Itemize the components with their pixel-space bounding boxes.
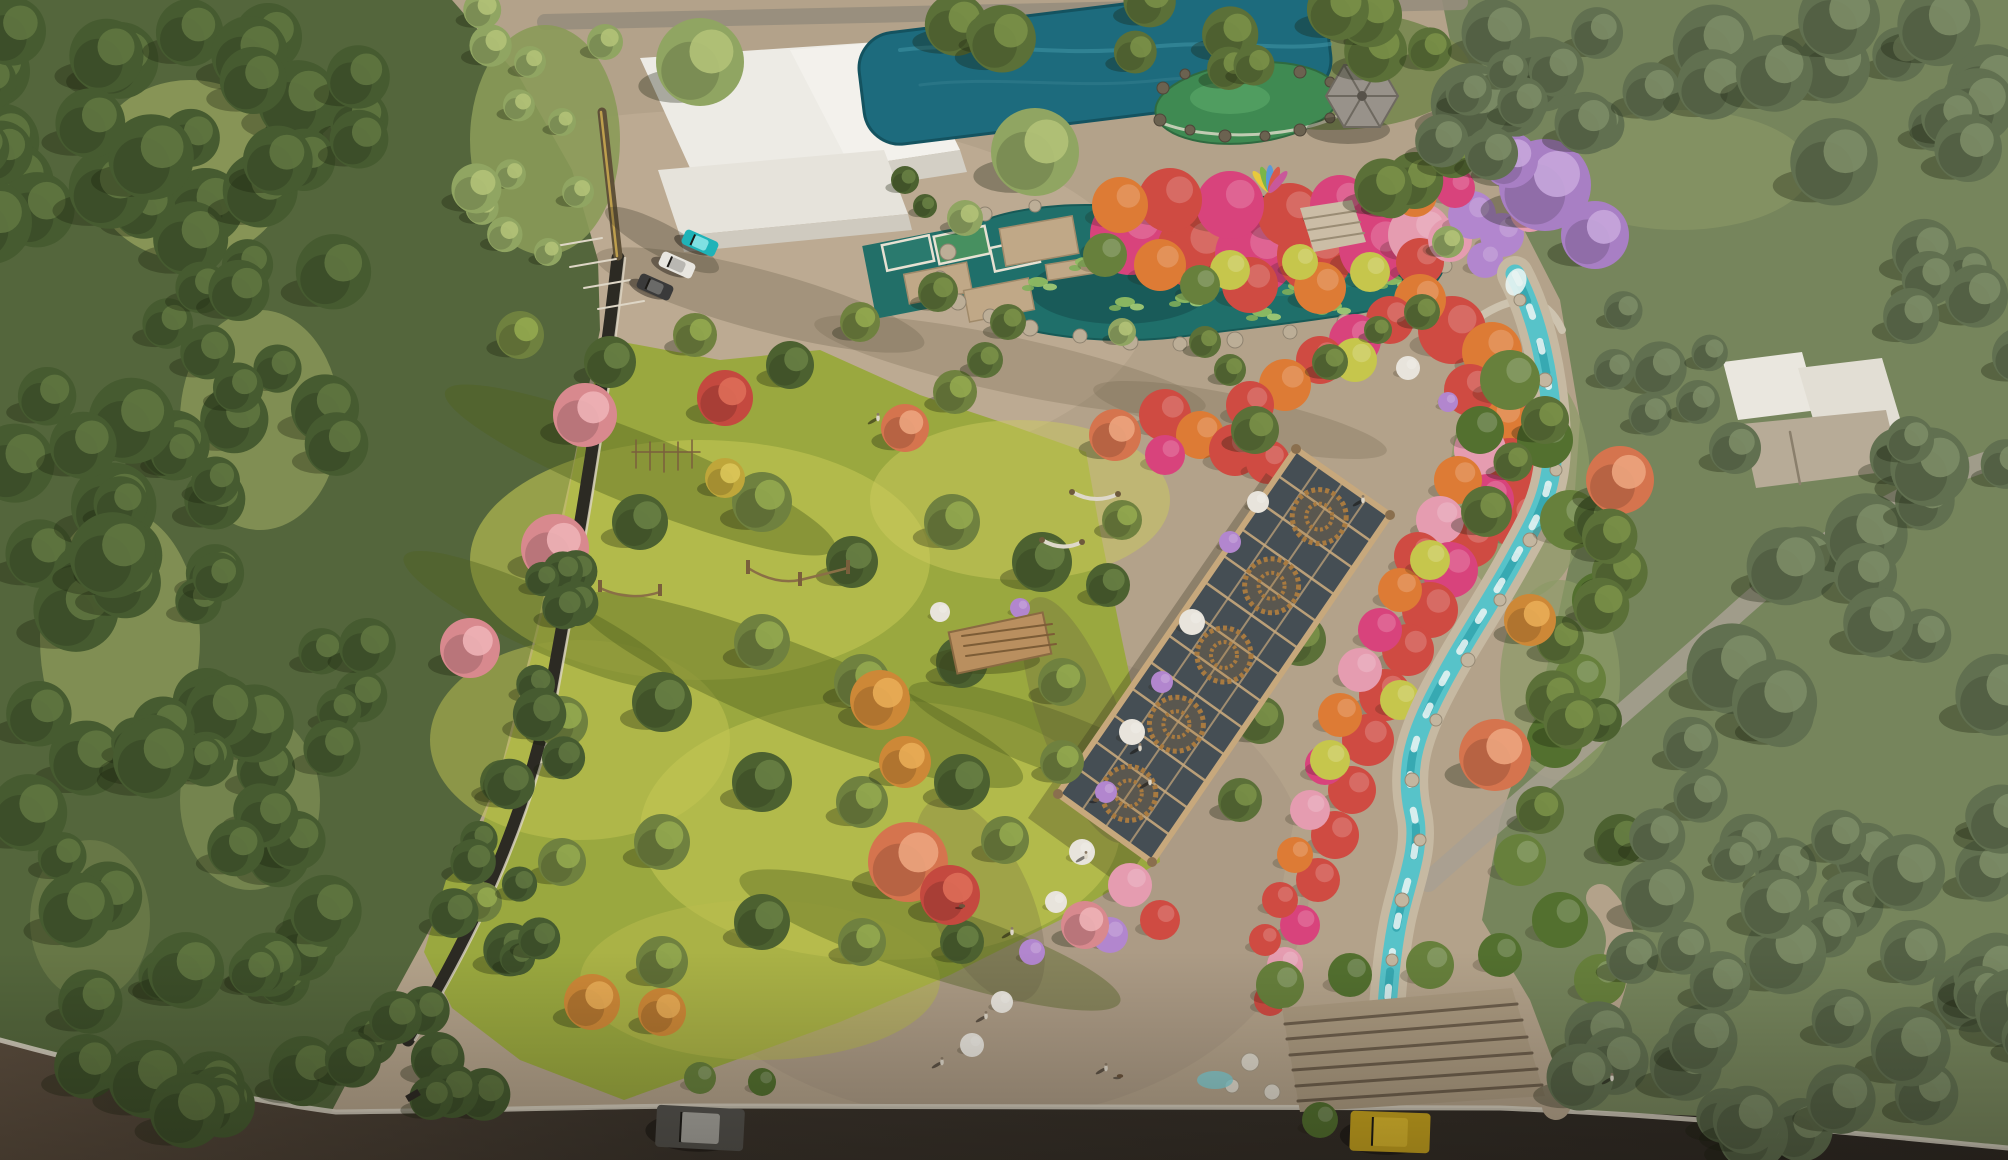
scene-layers — [0, 0, 2008, 1160]
bottom-shade-overlay — [0, 0, 2008, 1160]
scene-svg — [0, 0, 2008, 1160]
park-rendering — [0, 0, 2008, 1160]
